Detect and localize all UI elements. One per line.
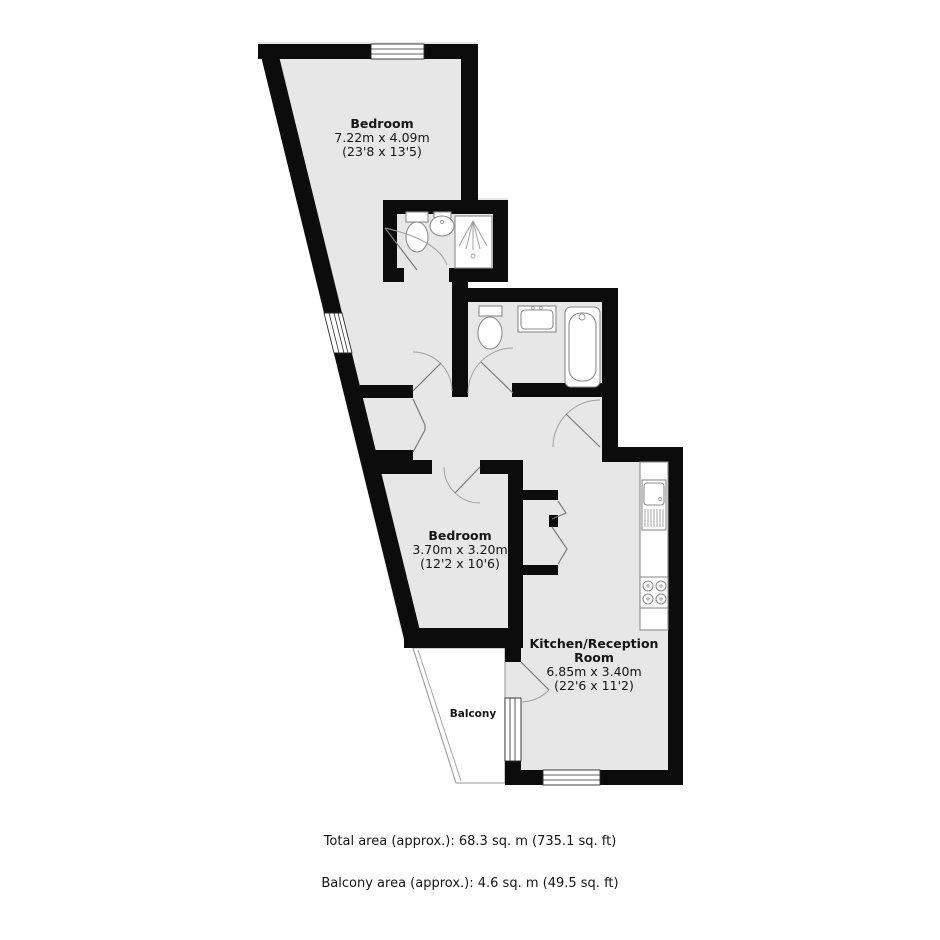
kitchen-name-line2: Room — [574, 650, 614, 665]
ensuite-toilet — [406, 212, 428, 252]
wall-segment — [360, 385, 413, 398]
wall-segment — [452, 268, 468, 397]
wall-segment — [493, 214, 508, 282]
kitchen-fixtures — [640, 462, 668, 630]
wall-segment — [512, 383, 618, 397]
kitchen-dims-imperial: (22'6 x 11'2) — [554, 678, 634, 693]
bathroom-toilet — [478, 306, 502, 349]
kitchen-window — [543, 770, 600, 785]
wall-segment — [383, 268, 404, 282]
bathroom-sink — [518, 306, 556, 332]
ensuite-sink — [430, 212, 454, 236]
closet-stub — [523, 565, 558, 575]
bedroom1-window — [371, 44, 424, 59]
total-area-text: Total area (approx.): 68.3 sq. m (735.1 … — [323, 834, 617, 849]
bedroom2-name: Bedroom — [428, 528, 491, 543]
wall-segment — [404, 628, 523, 648]
hob — [640, 577, 668, 608]
wall-segment — [508, 460, 523, 648]
bedroom1-name: Bedroom — [350, 116, 413, 131]
kitchen-dims-metric: 6.85m x 3.40m — [546, 664, 641, 679]
bedroom1-dims-metric: 7.22m x 4.09m — [334, 130, 429, 145]
bedroom1-dims-imperial: (23'8 x 13'5) — [342, 144, 422, 159]
wall-segment — [452, 288, 618, 302]
balcony-window — [505, 698, 521, 761]
balcony-area-text: Balcony area (approx.): 4.6 sq. m (49.5 … — [321, 876, 618, 891]
bedroom2-dims-imperial: (12'2 x 10'6) — [420, 556, 500, 571]
wall-segment — [668, 447, 683, 785]
floor-plan: Bedroom 7.22m x 4.09m (23'8 x 13'5) Bedr… — [0, 0, 940, 940]
shower — [455, 216, 492, 268]
bathtub — [565, 307, 600, 387]
closet-stub — [523, 490, 558, 500]
balcony-name: Balcony — [450, 708, 497, 720]
kitchen-sink — [642, 480, 666, 530]
wall-segment — [505, 761, 521, 785]
wall-segment — [461, 44, 478, 214]
wall-segment — [362, 450, 413, 463]
wall-segment — [602, 302, 618, 462]
kitchen-name-line1: Kitchen/Reception — [530, 636, 659, 651]
bedroom2-dims-metric: 3.70m x 3.20m — [412, 542, 507, 557]
floorplan-page: Bedroom 7.22m x 4.09m (23'8 x 13'5) Bedr… — [0, 0, 940, 940]
area-summary: Total area (approx.): 68.3 sq. m (735.1 … — [321, 834, 618, 891]
wall-segment — [258, 44, 478, 59]
